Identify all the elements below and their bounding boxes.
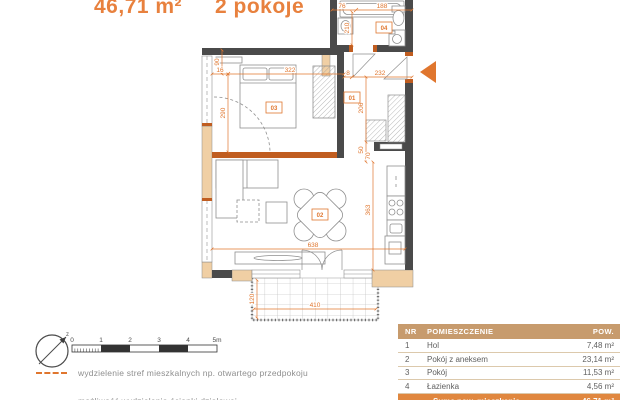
dashed-line-swatch — [36, 372, 67, 374]
side-table-optional — [237, 200, 259, 222]
dim-label: 210 — [344, 22, 351, 33]
dim-label: 322 — [285, 67, 296, 74]
row-nr: 3 — [398, 368, 427, 377]
legend-label: możliwość wydzielenia ścianki działowej — [78, 396, 237, 400]
col-area: POW. — [556, 327, 620, 336]
dim-label: 638 — [308, 242, 319, 249]
table-header: NR POMIESZCZENIE POW. — [398, 324, 620, 339]
room-table: NR POMIESZCZENIE POW. 1 Hol 7,48 m² 2 Po… — [398, 324, 620, 400]
tv — [254, 256, 302, 261]
scale-tick: 4 — [186, 337, 190, 344]
table-row: 2 Pokój z aneksem 23,14 m² — [398, 353, 620, 367]
north-label: z — [66, 332, 69, 338]
row-name: Hol — [427, 341, 556, 350]
dim-label: 50 — [358, 146, 365, 154]
row-area: 7,48 m² — [556, 341, 620, 350]
dim-label: 206 — [358, 102, 365, 113]
dim-label: 76 — [338, 3, 346, 10]
dim-label: 232 — [375, 70, 386, 77]
dim-label: 188 — [377, 3, 388, 10]
hall — [353, 54, 407, 149]
dim-label: 290 — [220, 107, 227, 118]
dim-label: 363 — [365, 204, 372, 215]
entrance-arrow-icon — [420, 61, 436, 83]
bath-door-swing — [353, 54, 375, 77]
dim-label: 410 — [310, 302, 321, 309]
row-name: Łazienka — [427, 382, 556, 391]
dim-label: 120 — [249, 293, 256, 304]
room-number-hall: 01 — [349, 96, 356, 102]
col-name: POMIESZCZENIE — [427, 327, 556, 336]
row-name: Pokój — [427, 368, 556, 377]
room-number-bath: 04 — [381, 26, 388, 32]
room-number-living: 02 — [317, 213, 324, 219]
row-area: 4,56 m² — [556, 382, 620, 391]
table-row: 1 Hol 7,48 m² — [398, 339, 620, 353]
scale-tick: 2 — [128, 337, 132, 344]
row-nr: 2 — [398, 355, 427, 364]
balcony — [252, 278, 378, 320]
dim-label: 70 — [365, 152, 372, 160]
col-nr: NR — [398, 327, 427, 336]
hall-cabinet — [366, 120, 386, 141]
dim-label: 90 — [214, 58, 221, 66]
scale-bar: 0 1 2 3 4 5m — [70, 337, 221, 352]
dim-label: 8 — [346, 70, 350, 77]
scale-tick: 0 — [70, 337, 74, 344]
scale-tick: 3 — [157, 337, 161, 344]
legend-item: możliwość wydzielenia ścianki działowej — [36, 396, 237, 400]
floorplan-page: 46,71 m² 2 pokoje — [0, 0, 620, 400]
row-area: 23,14 m² — [556, 355, 620, 364]
scale-tick: 1 — [99, 337, 103, 344]
row-area: 11,53 m² — [556, 368, 620, 377]
row-name: Pokój z aneksem — [427, 355, 556, 364]
entry-door-swing — [384, 57, 407, 79]
legend-label: wydzielenie stref mieszkalnych np. otwar… — [78, 368, 308, 378]
room-number-bedroom: 03 — [271, 106, 278, 112]
legend-item: wydzielenie stref mieszkalnych np. otwar… — [36, 368, 308, 378]
hall-wardrobe — [388, 95, 405, 142]
scale-tick: 5m — [212, 337, 221, 344]
dim-label: 16 — [216, 67, 224, 74]
table-total-row: Suma pow. mieszkania 46,71 m² — [398, 394, 620, 400]
north-compass-icon: z — [36, 332, 69, 367]
fridge — [387, 166, 405, 196]
row-nr: 1 — [398, 341, 427, 350]
table-row: 3 Pokój 11,53 m² — [398, 367, 620, 381]
stove — [387, 196, 405, 220]
row-nr: 4 — [398, 382, 427, 391]
coffee-table — [266, 202, 287, 223]
table-row: 4 Łazienka 4,56 m² — [398, 380, 620, 394]
